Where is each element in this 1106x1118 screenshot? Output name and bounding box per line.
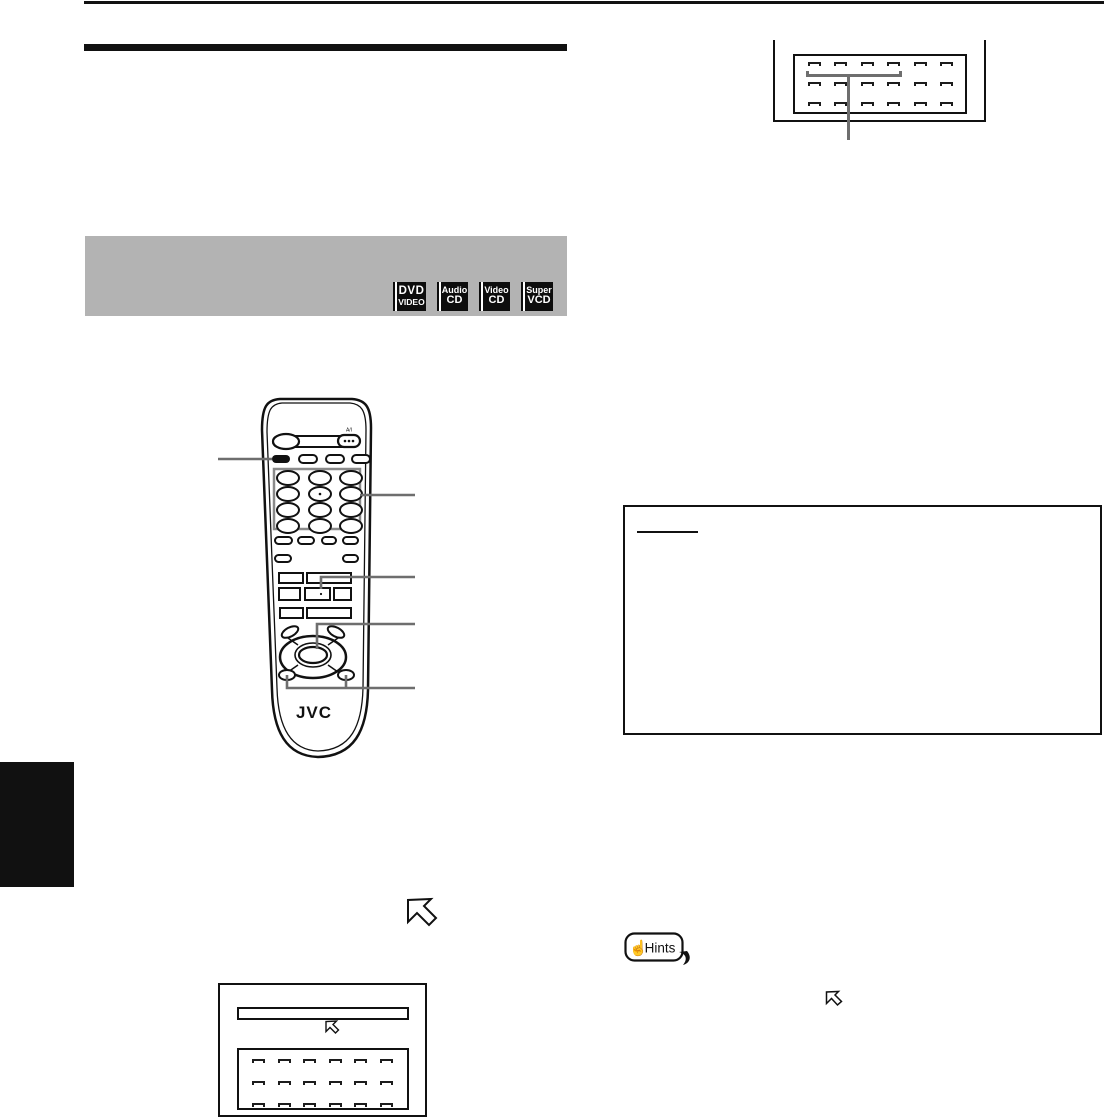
badge-video-cd: Video CD [479, 282, 510, 311]
menu-item-dash [887, 62, 900, 66]
source-button [299, 455, 317, 463]
menu-box [237, 1048, 409, 1110]
badge-label: VCD [525, 295, 553, 306]
menu-item-dash [887, 82, 900, 86]
menu-item-dash [252, 1059, 265, 1063]
manual-page: DVD VIDEO Audio CD Video CD Super VCD [0, 0, 1106, 1118]
menu-item-dash [940, 62, 953, 66]
enter-button [299, 647, 327, 663]
menu-item-dash [834, 62, 847, 66]
menu-item-dash [354, 1059, 367, 1063]
source-button-highlighted [272, 455, 290, 463]
menu-callout-line [847, 77, 850, 140]
page-edge-tab [0, 762, 74, 887]
menu-item-dash [861, 62, 874, 66]
menu-item-dash [329, 1059, 342, 1063]
menu-item-dash [303, 1081, 316, 1085]
menu-item-dash [252, 1103, 265, 1107]
tv-screen-bottom-edge [773, 120, 986, 122]
menu-item-dash [303, 1059, 316, 1063]
cursor-pointer-icon [404, 897, 440, 931]
menu-item-dash [861, 82, 874, 86]
menu-item-dash [354, 1081, 367, 1085]
menu-item-dash [303, 1103, 316, 1107]
menu-item-dash [834, 102, 847, 106]
cursor-pointer-icon-small [324, 1020, 341, 1036]
section-title-bar [84, 44, 567, 51]
menu-item-dash [380, 1059, 393, 1063]
cursor-pointer-icon-small [824, 990, 844, 1007]
menu-item-dash [861, 102, 874, 106]
menu-box [793, 54, 967, 114]
source-button [326, 455, 344, 463]
disc-format-badges: DVD VIDEO Audio CD Video CD Super VCD [393, 282, 553, 311]
menu-item-dash [354, 1103, 367, 1107]
source-button [352, 455, 370, 463]
tv-screen-left-edge [773, 40, 775, 122]
note-heading-underline [637, 531, 698, 533]
audio-button-dot [352, 440, 355, 443]
menu-item-dash [834, 82, 847, 86]
page-top-rule [84, 1, 1104, 4]
menu-item-dash [914, 62, 927, 66]
onscreen-menu-diagram-bottom [218, 983, 427, 1117]
menu-item-dash [329, 1081, 342, 1085]
menu-item-dash [940, 102, 953, 106]
play-button-nub [320, 593, 322, 595]
badge-dvd-video: DVD VIDEO [393, 282, 426, 311]
menu-item-dash [278, 1059, 291, 1063]
badge-label: VIDEO [397, 298, 426, 307]
menu-item-dash [808, 62, 821, 66]
menu-item-dash [914, 82, 927, 86]
badge-super-vcd: Super VCD [521, 282, 553, 311]
menu-item-dash [887, 102, 900, 106]
power-button [273, 434, 299, 449]
remote-top-label: A/I [346, 428, 352, 434]
badge-label: CD [483, 295, 510, 306]
menu-item-dash [808, 102, 821, 106]
number-5-nub [319, 493, 322, 496]
menu-title-bar [237, 1007, 409, 1020]
audio-button-dot [348, 440, 351, 443]
tv-screen-right-edge [984, 40, 986, 122]
menu-highlight-bracket [806, 71, 902, 77]
badge-label: CD [441, 295, 468, 306]
menu-item-dash [380, 1103, 393, 1107]
menu-item-dash [329, 1103, 342, 1107]
hints-badge: ☝ Hints [622, 930, 694, 970]
menu-item-dash [914, 102, 927, 106]
audio-button-dot [344, 440, 347, 443]
jvc-logo: JVC [296, 703, 332, 722]
badge-audio-cd: Audio CD [437, 282, 468, 311]
disc-format-panel: DVD VIDEO Audio CD Video CD Super VCD [85, 236, 567, 316]
menu-item-dash [278, 1103, 291, 1107]
menu-item-dash [252, 1081, 265, 1085]
menu-item-dash [940, 82, 953, 86]
menu-item-dash [380, 1081, 393, 1085]
play-control-buttons [279, 573, 351, 618]
note-box [623, 505, 1102, 735]
hints-label: Hints [645, 941, 676, 956]
remote-control-illustration: A/I [208, 393, 420, 765]
menu-item-dash [808, 82, 821, 86]
menu-item-dash [278, 1081, 291, 1085]
